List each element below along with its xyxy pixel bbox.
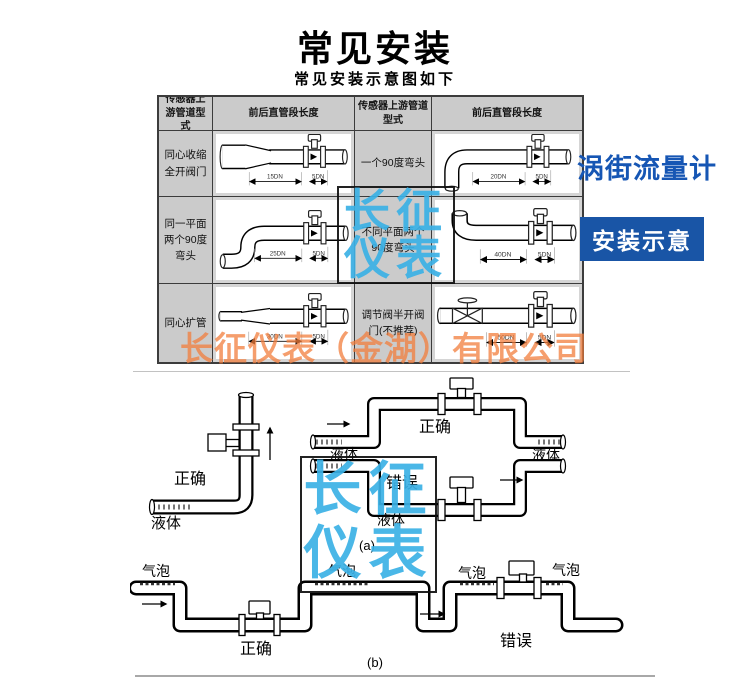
dim-label: 5DN [536,174,548,181]
dim-label: 20DN [491,174,507,181]
table-header-upstream-2: 传感器上游管道型式 [355,97,431,130]
company-watermark: 长征仪表（金湖）有限公司 [180,322,588,370]
table-header-length-2: 前后直管段长度 [432,97,582,130]
install-badge: 安装示意 [580,217,704,261]
page-subtitle: 常见安装示意图如下 [0,68,750,89]
row1-left-label: 同心收缩全开阀门 [159,131,212,196]
label-bubble-4: 气泡 [552,562,580,578]
brand-watermark-line1: 长征 [302,458,435,522]
section-divider [133,371,630,372]
label-correct: 正确 [240,640,272,658]
row1-left-diagram: 15DN 5DN [213,131,354,196]
dim-label: 15DN [267,174,283,181]
dim-label: 5DN [312,250,325,257]
brand-watermark-lower: 长征 仪表 [300,456,437,593]
label-bubble-1: 气泡 [142,563,170,579]
bridge-pipe-correct: 正确 液体 液体 [311,378,566,463]
elbow-pipe-diagram: 20DN 5DN [435,134,579,193]
label-bubble-3: 气泡 [458,565,486,581]
label-correct-top: 正确 [419,418,451,436]
label-correct-left: 正确 [174,470,206,488]
different-plane-elbows-diagram: 40DN 5DN [435,200,579,280]
table-header-upstream-1: 传感器上游管道型式 [159,97,212,130]
dim-label: 5DN [312,174,324,181]
page: 常见安装 常见安装示意图如下 传感器上游管道型式 前后直管段长度 传感器上游管道… [0,0,750,686]
bottom-border [135,675,655,677]
brand-watermark-line2: 仪表 [339,235,453,282]
dim-label: 5DN [538,251,552,258]
dim-label: 25DN [270,250,286,257]
brand-watermark-line1: 长征 [339,188,453,235]
figure-b-caption: (b) [367,655,383,670]
product-title: 涡街流量计 [577,147,717,186]
label-wrong: 错误 [500,632,532,650]
reducer-pipe-diagram: 15DN 5DN [216,134,351,193]
label-liquid-left: 液体 [151,515,181,532]
vertical-pipe-diagram: 正确 液体 [150,393,271,533]
table-header-length-1: 前后直管段长度 [213,97,354,130]
brand-watermark-line2: 仪表 [302,522,435,586]
same-plane-elbows-diagram: 25DN 5DN [216,200,351,280]
row2-left-diagram: 25DN 5DN [213,197,354,283]
brand-watermark-upper: 长征 仪表 [337,186,455,284]
row2-left-label: 同一平面两个90度弯头 [159,197,212,283]
page-title: 常见安装 [0,20,750,72]
dim-label: 40DN [494,251,511,258]
